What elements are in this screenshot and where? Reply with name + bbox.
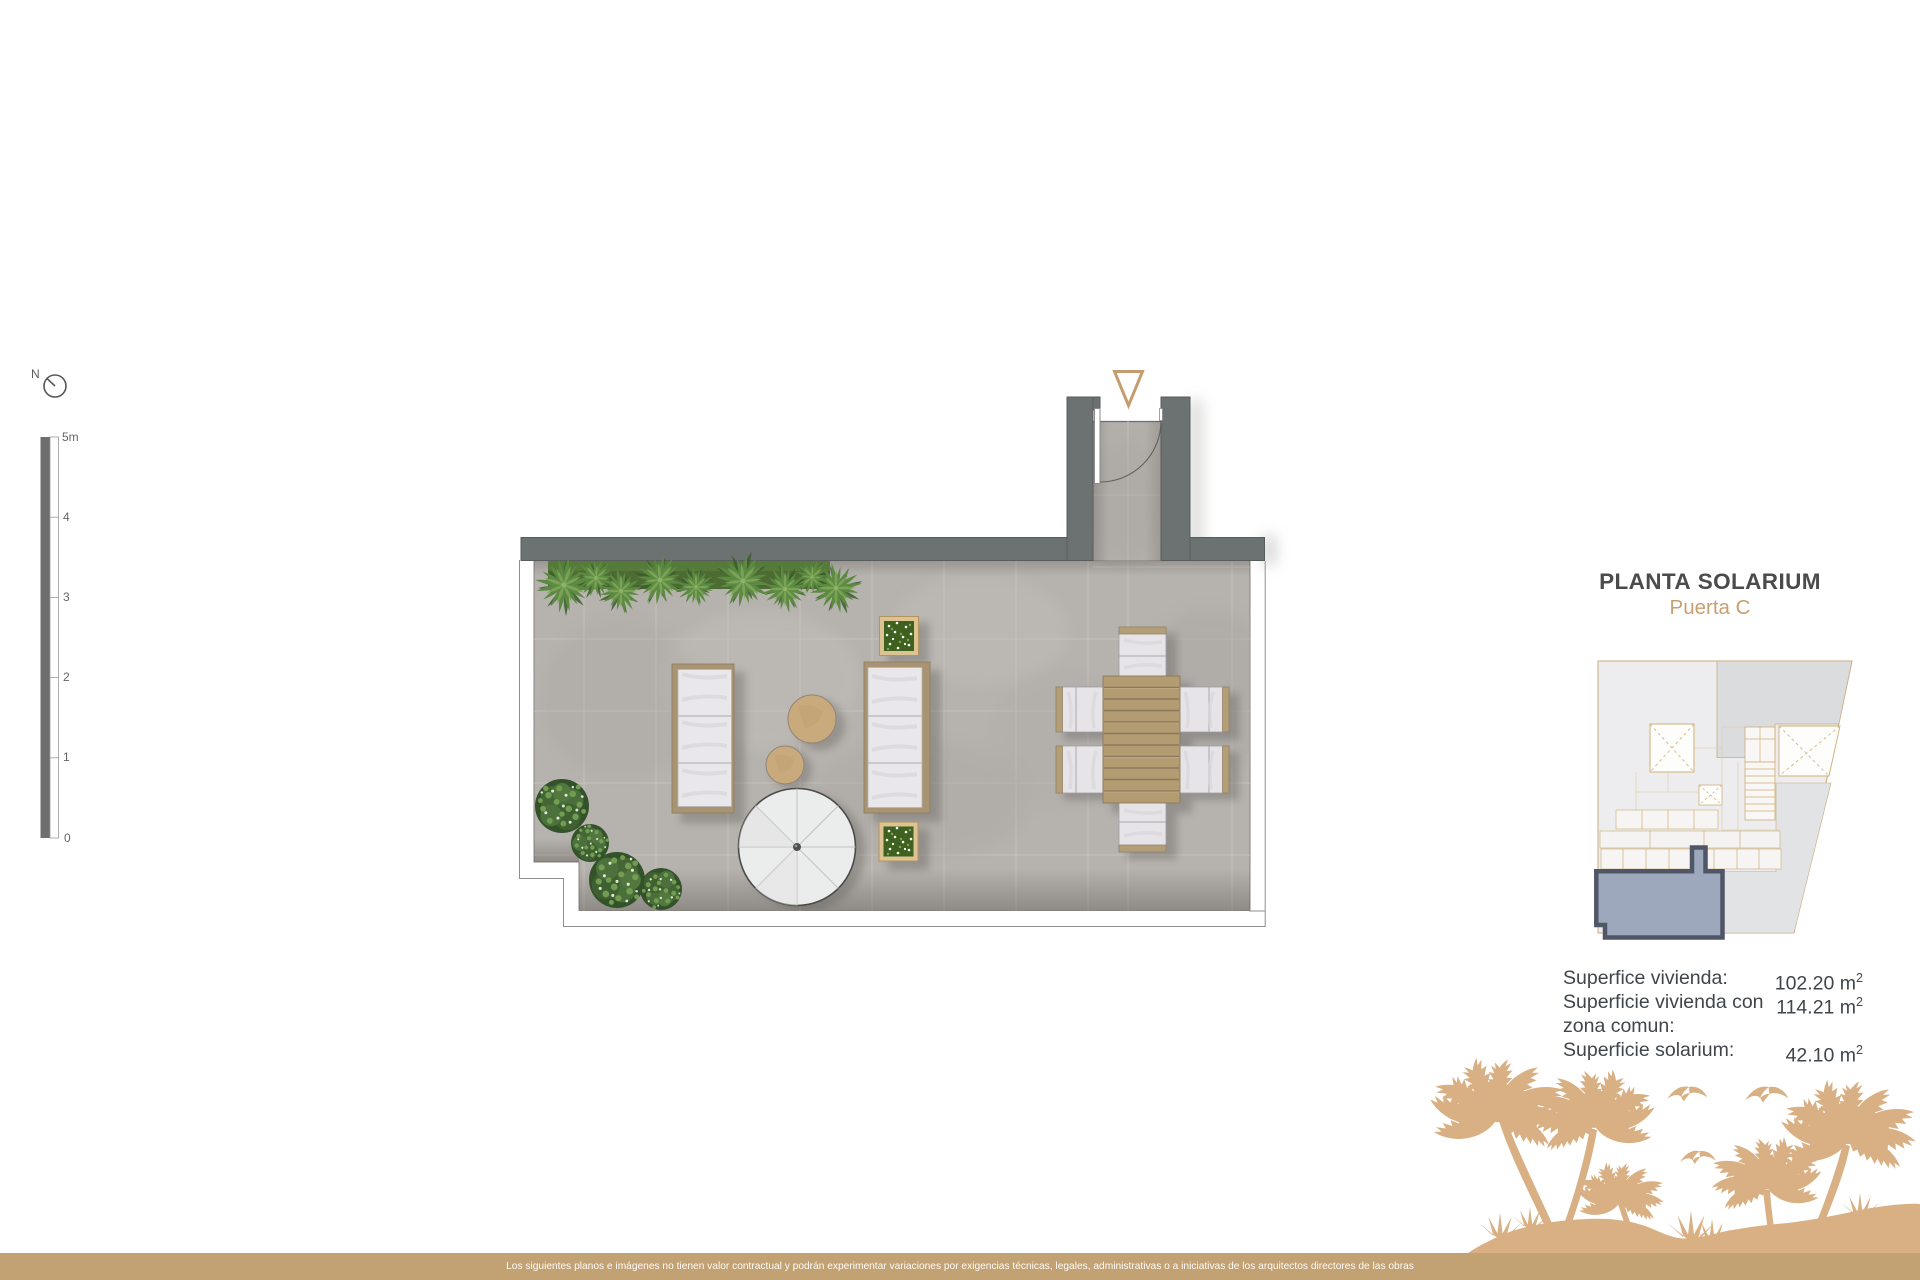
svg-text:N: N bbox=[31, 367, 40, 381]
svg-text:5m: 5m bbox=[62, 430, 79, 444]
svg-text:4: 4 bbox=[63, 510, 70, 524]
svg-text:2: 2 bbox=[63, 670, 70, 684]
svg-text:3: 3 bbox=[63, 590, 70, 604]
svg-text:0: 0 bbox=[64, 831, 71, 845]
svg-text:1: 1 bbox=[63, 750, 70, 764]
